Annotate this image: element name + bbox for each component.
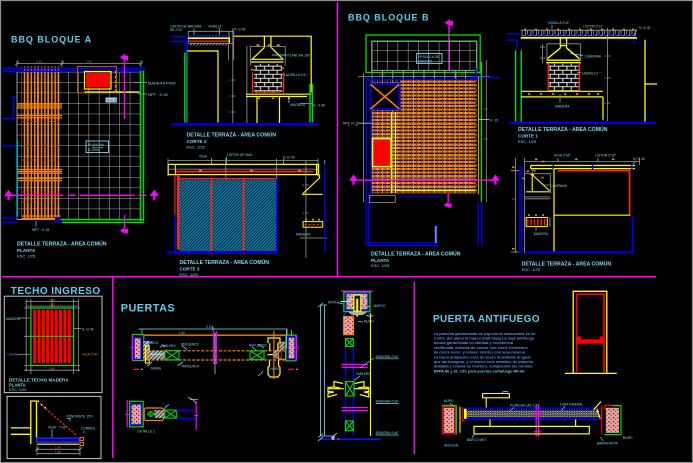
svg-text:MADERA: MADERA	[555, 105, 570, 109]
svg-text:CAMPANA: CAMPANA	[550, 184, 567, 188]
svg-text:1.2: 1.2	[484, 107, 489, 111]
svg-text:PLANCHA LAC 1/20": PLANCHA LAC 1/20"	[510, 404, 540, 408]
svg-text:BARRA ANTIP.: BARRA ANTIP.	[597, 442, 618, 446]
svg-text:1.0: 1.0	[484, 137, 489, 141]
svg-text:0.60: 0.60	[458, 73, 464, 77]
svg-text:TABLERO: TABLERO	[356, 372, 371, 376]
svg-text:PUERTA ANTIFUEGO: PUERTA ANTIFUEGO	[433, 314, 540, 325]
svg-text:ANCLAJE: ANCLAJE	[444, 444, 458, 448]
svg-text:1.80: 1.80	[49, 367, 55, 371]
svg-text:MADERA: MADERA	[6, 317, 21, 321]
svg-text:TABLERO: TABLERO	[161, 344, 176, 348]
svg-text:CANAL: CANAL	[7, 353, 18, 357]
svg-text:0.60: 0.60	[230, 94, 236, 98]
svg-text:0.80: 0.80	[605, 101, 611, 105]
svg-text:DETALLE TERRAZA - AREA COMÚN: DETALLE TERRAZA - AREA COMÚN	[180, 259, 270, 266]
svg-text:E=2mm: E=2mm	[88, 148, 100, 152]
svg-text:VIGA 2"x6": VIGA 2"x6"	[554, 154, 572, 158]
svg-text:BISAGRA 4"x4": BISAGRA 4"x4"	[376, 431, 400, 435]
svg-text:1.60: 1.60	[49, 303, 55, 307]
svg-text:ESC. 1/25: ESC. 1/25	[180, 272, 199, 277]
svg-text:N.+2.40: N.+2.40	[283, 155, 295, 159]
svg-text:2.50: 2.50	[86, 60, 92, 64]
svg-text:CORTE 1: CORTE 1	[518, 134, 538, 139]
svg-text:ESC. 1/25: ESC. 1/25	[371, 263, 390, 268]
svg-text:1.60: 1.60	[55, 450, 61, 454]
svg-text:MURO: MURO	[444, 399, 454, 403]
svg-text:0.60: 0.60	[605, 76, 611, 80]
svg-text:NFPA 80 y UL 10C para puertas: NFPA 80 y UL 10C para puertas cortafuego…	[434, 368, 526, 373]
svg-text:2.50: 2.50	[379, 73, 385, 77]
svg-text:ESC. 1/25: ESC. 1/25	[187, 145, 206, 150]
svg-text:ESC. 1/25: ESC. 1/25	[9, 388, 26, 392]
svg-text:MARCO: MARCO	[374, 304, 386, 308]
svg-text:PLANTA: PLANTA	[17, 248, 36, 253]
svg-text:BBQ BLOQUE B: BBQ BLOQUE B	[348, 13, 429, 23]
svg-text:MADERA PINO: MADERA PINO	[148, 81, 176, 86]
svg-text:NPT +0.15: NPT +0.15	[32, 228, 49, 232]
svg-text:BISAGRA 4"x4": BISAGRA 4"x4"	[376, 355, 400, 359]
svg-text:PENDIENTE 15%: PENDIENTE 15%	[67, 415, 93, 419]
svg-text:1.45: 1.45	[55, 446, 61, 450]
svg-text:JAMBA: JAMBA	[150, 366, 162, 370]
svg-text:VIGA * 2"x6": VIGA * 2"x6"	[48, 426, 67, 430]
svg-text:NPT. +0.40: NPT. +0.40	[148, 92, 169, 97]
svg-text:N.+2.40: N.+2.40	[82, 328, 94, 332]
svg-text:DETALLE TERRAZA - AREA COMÚN: DETALLE TERRAZA - AREA COMÚN	[371, 251, 461, 258]
svg-text:DETALLE 1: DETALLE 1	[137, 430, 155, 434]
svg-text:LADRILLO **: LADRILLO **	[582, 72, 603, 76]
svg-text:N+0.40: N+0.40	[107, 99, 118, 103]
svg-text:ESC. 1/25: ESC. 1/25	[17, 254, 36, 259]
svg-text:DETALLE TERRAZA - AREA COMÚN: DETALLE TERRAZA - AREA COMÚN	[17, 241, 107, 248]
svg-text:1.20: 1.20	[303, 211, 309, 215]
svg-text:TAPAJUNTA: TAPAJUNTA	[181, 364, 200, 368]
svg-text:PLANCHA: PLANCHA	[88, 143, 105, 147]
svg-text:MADERA: MADERA	[418, 59, 433, 63]
svg-text:0.45: 0.45	[303, 183, 309, 187]
svg-text:BBQ BLOQUE A: BBQ BLOQUE A	[11, 35, 92, 45]
svg-text:N.+0.40: N.+0.40	[313, 104, 325, 108]
svg-text:* ASNILLA 3"x3": * ASNILLA 3"x3"	[546, 21, 569, 25]
svg-text:CORREA *: CORREA *	[81, 427, 98, 431]
svg-text:ASNILLA: ASNILLA	[209, 24, 223, 28]
svg-text:N+.15: N+.15	[490, 118, 499, 122]
svg-text:1.00: 1.00	[605, 54, 611, 58]
svg-text:LANA MINERAL: LANA MINERAL	[560, 403, 583, 407]
svg-text:CORTE 2: CORTE 2	[187, 139, 207, 144]
svg-text:PLANTA: PLANTA	[9, 383, 26, 388]
svg-text:1.80: 1.80	[49, 298, 55, 302]
svg-text:0.80: 0.80	[230, 110, 236, 114]
svg-text:DINTEL: DINTEL	[328, 301, 340, 305]
svg-text:VIGA: VIGA	[199, 155, 208, 159]
svg-text:LISTON DE MAD. *: LISTON DE MAD. *	[227, 153, 256, 157]
svg-text:DE 2"x2": DE 2"x2"	[170, 28, 183, 32]
svg-text:CAMPANA: CAMPANA	[585, 55, 602, 59]
svg-text:MADERA: MADERA	[296, 233, 311, 237]
svg-text:REFUERZO: REFUERZO	[181, 342, 199, 346]
svg-text:DETALLE TERRAZA - AREA COMÚN: DETALLE TERRAZA - AREA COMÚN	[187, 132, 277, 139]
svg-text:2.4: 2.4	[512, 197, 517, 201]
svg-text:VIGA 2"x6": VIGA 2"x6"	[82, 353, 99, 357]
svg-text:TECHO INGRESO: TECHO INGRESO	[11, 286, 101, 297]
svg-text:BISAGRA 4"x4": BISAGRA 4"x4"	[376, 400, 400, 404]
svg-text:* N.+2.40: * N.+2.40	[637, 26, 651, 30]
svg-text:LADRILLO KK *: LADRILLO KK *	[284, 73, 309, 77]
svg-text:ESC. 1/25: ESC. 1/25	[518, 139, 537, 144]
svg-text:PLANCHA 1/8": PLANCHA 1/8"	[287, 54, 310, 58]
svg-text:MURO: MURO	[364, 320, 374, 324]
svg-text:MURO: MURO	[623, 436, 633, 440]
svg-text:ESC. 1/20: ESC. 1/20	[522, 267, 541, 272]
svg-text:CHAPA: CHAPA	[268, 367, 280, 371]
svg-text:REFUERZO: REFUERZO	[249, 344, 267, 348]
svg-text:CORTE 3: CORTE 3	[180, 267, 200, 272]
svg-text:PUERTAS: PUERTAS	[121, 302, 175, 314]
svg-text:MARCO MET.: MARCO MET.	[467, 438, 487, 442]
svg-text:1.00: 1.00	[230, 78, 236, 82]
svg-text:MARCO: MARCO	[146, 341, 158, 345]
svg-text:LISTON 2"x2": LISTON 2"x2"	[583, 25, 603, 29]
svg-text:DETALLE TERRAZA - AREA COMÚN: DETALLE TERRAZA - AREA COMÚN	[518, 126, 608, 133]
svg-text:1.50: 1.50	[36, 60, 42, 64]
svg-text:LISTON 2"x2": LISTON 2"x2"	[595, 154, 617, 158]
svg-text:2.10: 2.10	[206, 325, 213, 329]
svg-text:MADERA: MADERA	[534, 232, 549, 236]
